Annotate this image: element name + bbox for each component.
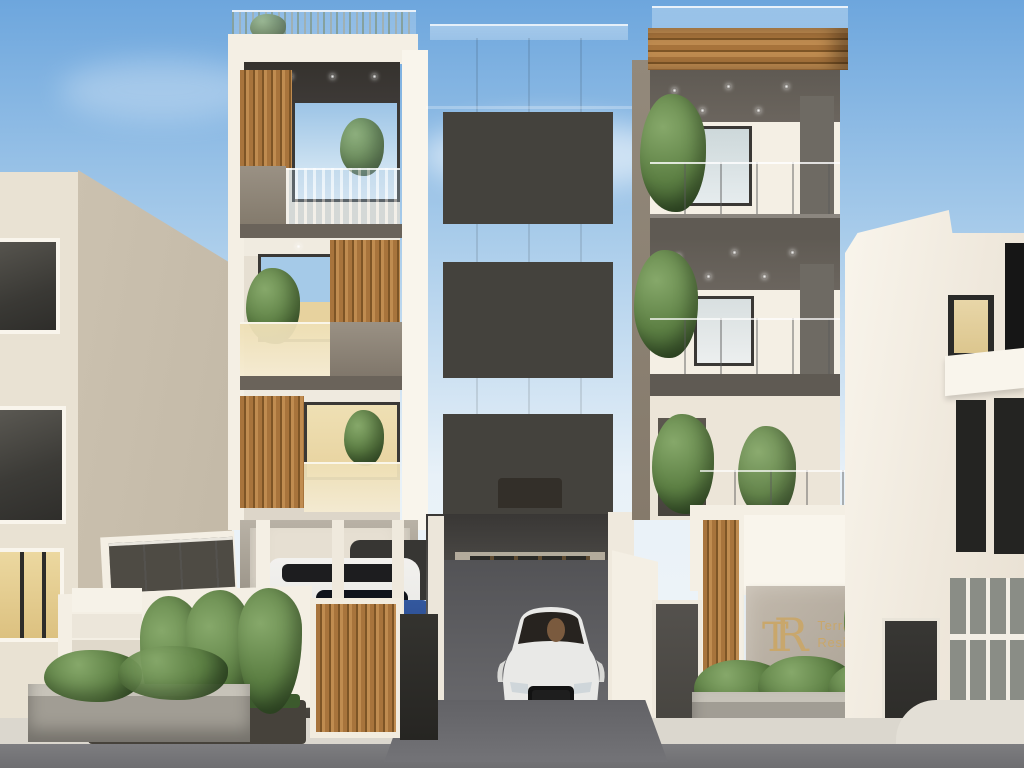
right-neighbor-window-dark — [994, 398, 1024, 554]
wood-slat-gate — [310, 598, 402, 738]
right-neighbor-lower-windows — [950, 578, 1024, 700]
midleft-f3-balustrade — [304, 462, 400, 512]
front-steps — [72, 588, 142, 612]
left-neighbor-window — [0, 238, 60, 334]
left-glass-fence — [109, 537, 235, 593]
right-wood-fascia — [648, 28, 848, 70]
floor-edge-band — [240, 224, 402, 238]
architectural-render: TR Terrace Residence — [0, 0, 1024, 768]
ceiling-light — [762, 274, 767, 279]
planter-bush — [118, 646, 228, 700]
front-steps — [72, 614, 142, 638]
right-neighbor-window-dark — [956, 400, 986, 552]
balcony-fascia — [650, 374, 840, 396]
ceiling-light — [756, 108, 761, 113]
midleft-f1-concrete-pier — [240, 166, 286, 226]
balcony-fascia — [650, 218, 840, 240]
midleft-f1-wood-slats — [240, 70, 292, 168]
midleft-side-face — [402, 50, 428, 530]
tower-window-group — [443, 262, 613, 378]
ceiling-light — [706, 274, 711, 279]
midleft-f1-balustrade — [286, 168, 400, 226]
window-column — [446, 417, 478, 420]
dark-utility-panel — [400, 614, 438, 740]
tower-window-group — [443, 112, 613, 224]
left-neighbor-window — [0, 406, 66, 524]
midleft-parapet — [228, 34, 418, 64]
ceiling-light — [726, 84, 731, 89]
window-mullion — [20, 552, 24, 638]
midleft-f2-balustrade — [240, 322, 336, 378]
ceiling-light — [296, 244, 301, 249]
right-neighbor-balcony — [945, 348, 1024, 396]
window-mullion — [42, 552, 46, 638]
ceiling-light — [784, 84, 789, 89]
midleft-f2-concrete-pier — [330, 322, 402, 378]
right-neighbor-window-lit — [954, 300, 988, 353]
ceiling-light — [672, 88, 677, 93]
right-f2-balustrade — [650, 318, 840, 374]
window-column — [446, 115, 478, 118]
ceiling-light — [330, 74, 335, 79]
window-column — [446, 265, 478, 268]
right-neighbor-window-dark — [1005, 243, 1024, 351]
monogram-letter-r: R — [774, 608, 809, 662]
midleft-f3-wood-slats — [240, 396, 304, 508]
ceiling-light — [790, 250, 795, 255]
facade-joint — [426, 106, 632, 109]
left-neighbor-window-lit — [0, 548, 64, 642]
ceiling-light — [700, 108, 705, 113]
sidewalk-corner — [896, 700, 1024, 744]
tr-monogram: TR — [762, 612, 808, 658]
interior-plant — [344, 410, 384, 466]
right-f1-balustrade — [650, 162, 840, 216]
ceiling-light — [372, 74, 377, 79]
ceiling-light — [732, 250, 737, 255]
interior-furniture-silhouette — [498, 478, 562, 508]
floor-edge-band — [240, 376, 402, 390]
